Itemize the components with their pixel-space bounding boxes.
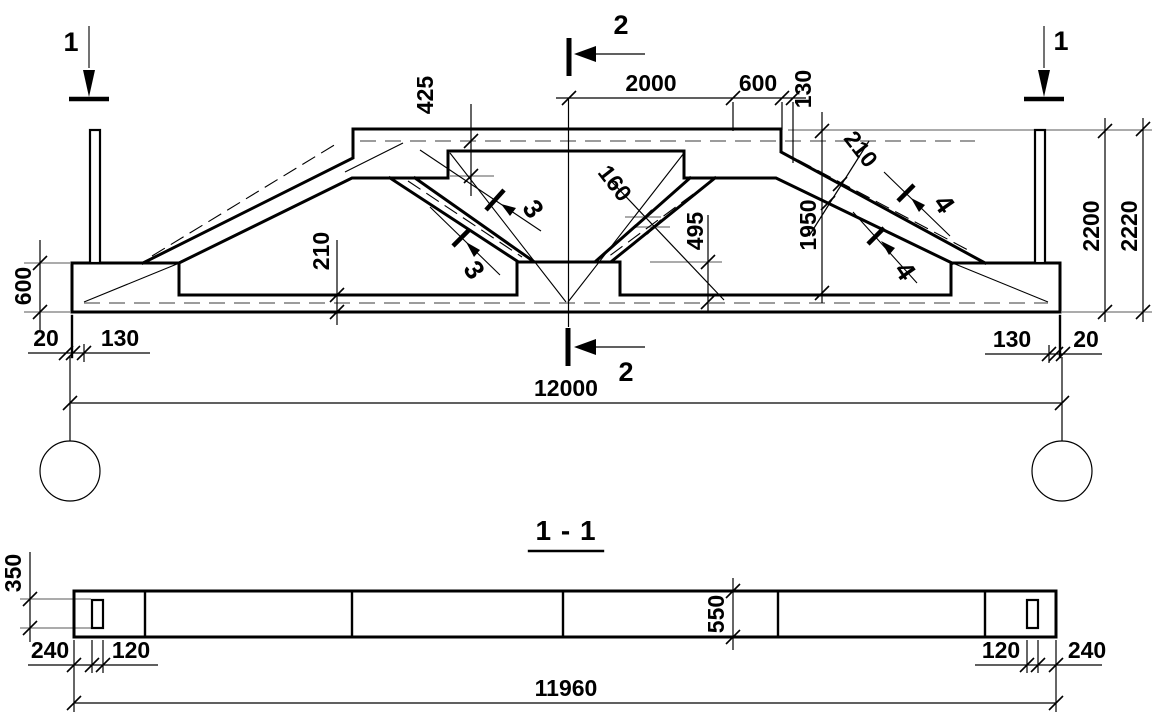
cut-label-2-bottom: 2 [618, 357, 633, 387]
girder-elevation: 2000 600 130 425 160 495 210 210 [10, 10, 1152, 501]
dimension-top-chain: 2000 600 130 [556, 70, 816, 327]
dimension-600-end: 600 [10, 240, 47, 330]
cut-marker-1-left: 1 [63, 26, 109, 99]
cut-label-4-lower: 4 [888, 256, 921, 286]
dimension-12000: 12000 [63, 357, 1069, 441]
right-support-pin [1035, 130, 1045, 263]
dimension-20-130-left: 20 130 [28, 316, 150, 362]
dimension-11960: 11960 [67, 675, 1063, 710]
section-view-1-1: 1 - 1 350 550 240 120 120 [0, 515, 1106, 712]
dim-130-right-label: 130 [993, 326, 1031, 352]
cut-label-1-right: 1 [1053, 26, 1068, 56]
left-support-pin [90, 130, 100, 263]
dimension-240-120-left: 240 120 [28, 637, 158, 712]
dim-1950-label: 1950 [795, 199, 821, 250]
dimension-130-20-right: 130 20 [985, 316, 1102, 363]
cut-label-3-upper: 3 [516, 194, 549, 224]
drawing-sheet: 2000 600 130 425 160 495 210 210 [0, 0, 1161, 718]
axis-circle-left [40, 441, 100, 501]
dimension-550: 550 [703, 578, 740, 650]
dim-350-label: 350 [0, 554, 26, 592]
dim-240-right-label: 240 [1068, 637, 1106, 663]
left-arrow-icon [574, 46, 596, 62]
dim-240-left-label: 240 [31, 637, 69, 663]
section-cut-markers: 1 1 2 2 [63, 10, 1068, 387]
dim-495-label: 495 [682, 212, 708, 251]
grid-axes [40, 441, 1092, 501]
dim-425-label: 425 [412, 76, 438, 115]
cut-label-4-upper: 4 [927, 189, 960, 219]
dim-600-left-label: 600 [10, 267, 36, 305]
cut-marker-2-top: 2 [569, 10, 645, 76]
dimension-120-240-right: 120 240 [975, 637, 1106, 712]
dimension-2220: 2220 [1116, 118, 1150, 322]
extension-lines [24, 130, 1152, 312]
cut-label-1-left: 1 [63, 27, 78, 57]
dim-130-top: 130 [790, 70, 816, 108]
section-left-pocket [92, 600, 103, 628]
dimension-2200: 2200 [1078, 118, 1112, 322]
section-extension-lines [20, 599, 91, 628]
left-arrow-icon [574, 339, 596, 355]
dim-20-right-label: 20 [1073, 326, 1099, 352]
cut-marker-3-upper: 3 [420, 150, 550, 231]
dim-120-right-label: 120 [982, 637, 1020, 663]
diagonal-arrow-icon [881, 241, 895, 255]
cut-label-3-lower: 3 [457, 255, 490, 285]
truss-girder-drawing: 2000 600 130 425 160 495 210 210 [0, 0, 1161, 718]
diagonal-arrow-icon [501, 204, 516, 216]
section-division-lines [145, 591, 985, 637]
dim-160-label: 160 [593, 160, 637, 206]
down-arrow-icon [83, 70, 95, 97]
section-view-title: 1 - 1 [535, 515, 596, 546]
dim-2000: 2000 [625, 70, 676, 96]
dim-12000-label: 12000 [534, 375, 598, 401]
dim-210-left-label: 210 [308, 232, 334, 270]
dim-2200-label: 2200 [1078, 200, 1104, 251]
dim-210-slope-label: 210 [839, 126, 883, 172]
dim-120-left-label: 120 [112, 637, 150, 663]
dim-550-label: 550 [703, 595, 729, 633]
dim-20-left-label: 20 [33, 325, 59, 351]
down-arrow-icon [1038, 70, 1050, 97]
cut-marker-1-right: 1 [1024, 26, 1069, 99]
diagonal-arrow-icon [466, 242, 480, 257]
section-body [74, 591, 1056, 637]
cut-label-2-top: 2 [613, 10, 628, 40]
girder-outline [72, 129, 1060, 312]
axis-circle-right [1032, 441, 1092, 501]
dim-11960-label: 11960 [535, 675, 598, 701]
dim-2220-label: 2220 [1116, 200, 1142, 251]
section-right-pocket [1027, 600, 1038, 628]
dim-600-top: 600 [739, 70, 777, 96]
dim-130-left-label: 130 [101, 325, 139, 351]
